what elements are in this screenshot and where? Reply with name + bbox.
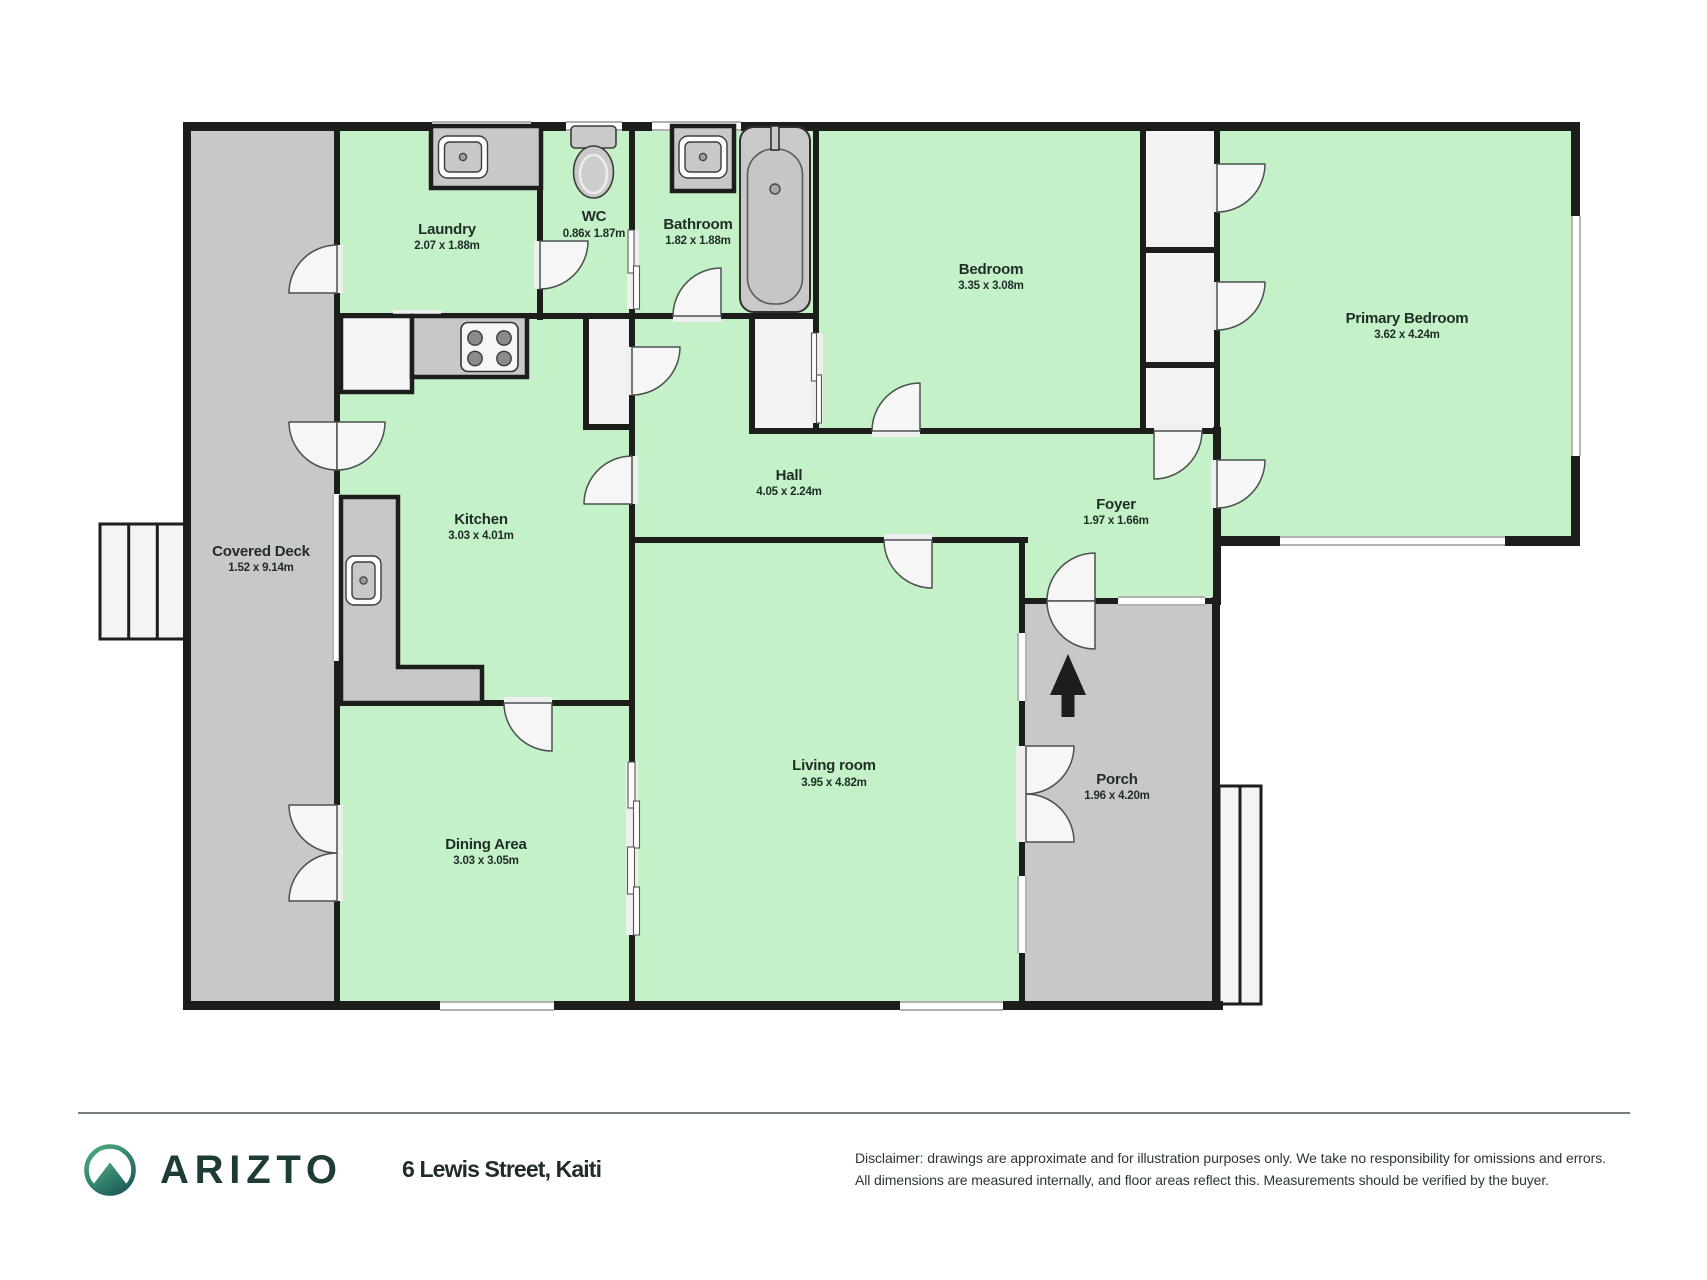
svg-text:3.35 x 3.08m: 3.35 x 3.08m: [958, 280, 1023, 292]
svg-text:Laundry: Laundry: [418, 221, 477, 238]
svg-text:Covered Deck: Covered Deck: [212, 543, 311, 560]
svg-text:1.82 x 1.88m: 1.82 x 1.88m: [665, 235, 730, 247]
svg-text:1.97 x 1.66m: 1.97 x 1.66m: [1083, 515, 1148, 527]
svg-text:4.05 x 2.24m: 4.05 x 2.24m: [756, 486, 821, 498]
svg-text:Bathroom: Bathroom: [663, 216, 732, 233]
svg-text:Hall: Hall: [776, 467, 803, 484]
svg-text:Living room: Living room: [792, 757, 876, 774]
svg-text:Foyer: Foyer: [1096, 496, 1136, 513]
svg-text:Primary Bedroom: Primary Bedroom: [1346, 310, 1469, 327]
svg-text:3.03 x 3.05m: 3.03 x 3.05m: [453, 855, 518, 867]
svg-text:2.07 x 1.88m: 2.07 x 1.88m: [414, 240, 479, 252]
svg-text:ARIZTO: ARIZTO: [160, 1148, 341, 1192]
svg-text:1.96 x 4.20m: 1.96 x 4.20m: [1084, 790, 1149, 802]
svg-text:WC: WC: [582, 208, 607, 225]
svg-text:Disclaimer: drawings are appro: Disclaimer: drawings are approximate and…: [855, 1150, 1606, 1166]
svg-text:Dining Area: Dining Area: [445, 836, 527, 853]
svg-text:3.03 x 4.01m: 3.03 x 4.01m: [448, 530, 513, 542]
svg-text:0.86x 1.87m: 0.86x 1.87m: [563, 228, 625, 240]
svg-text:3.95 x 4.82m: 3.95 x 4.82m: [801, 777, 866, 789]
svg-text:Kitchen: Kitchen: [454, 511, 508, 528]
svg-text:All dimensions are measured in: All dimensions are measured internally, …: [855, 1172, 1549, 1188]
svg-text:Porch: Porch: [1096, 771, 1138, 788]
svg-text:Bedroom: Bedroom: [959, 261, 1023, 278]
svg-text:3.62 x 4.24m: 3.62 x 4.24m: [1374, 329, 1439, 341]
svg-text:1.52 x 9.14m: 1.52 x 9.14m: [228, 562, 293, 574]
svg-text:6 Lewis Street, Kaiti: 6 Lewis Street, Kaiti: [402, 1156, 602, 1182]
